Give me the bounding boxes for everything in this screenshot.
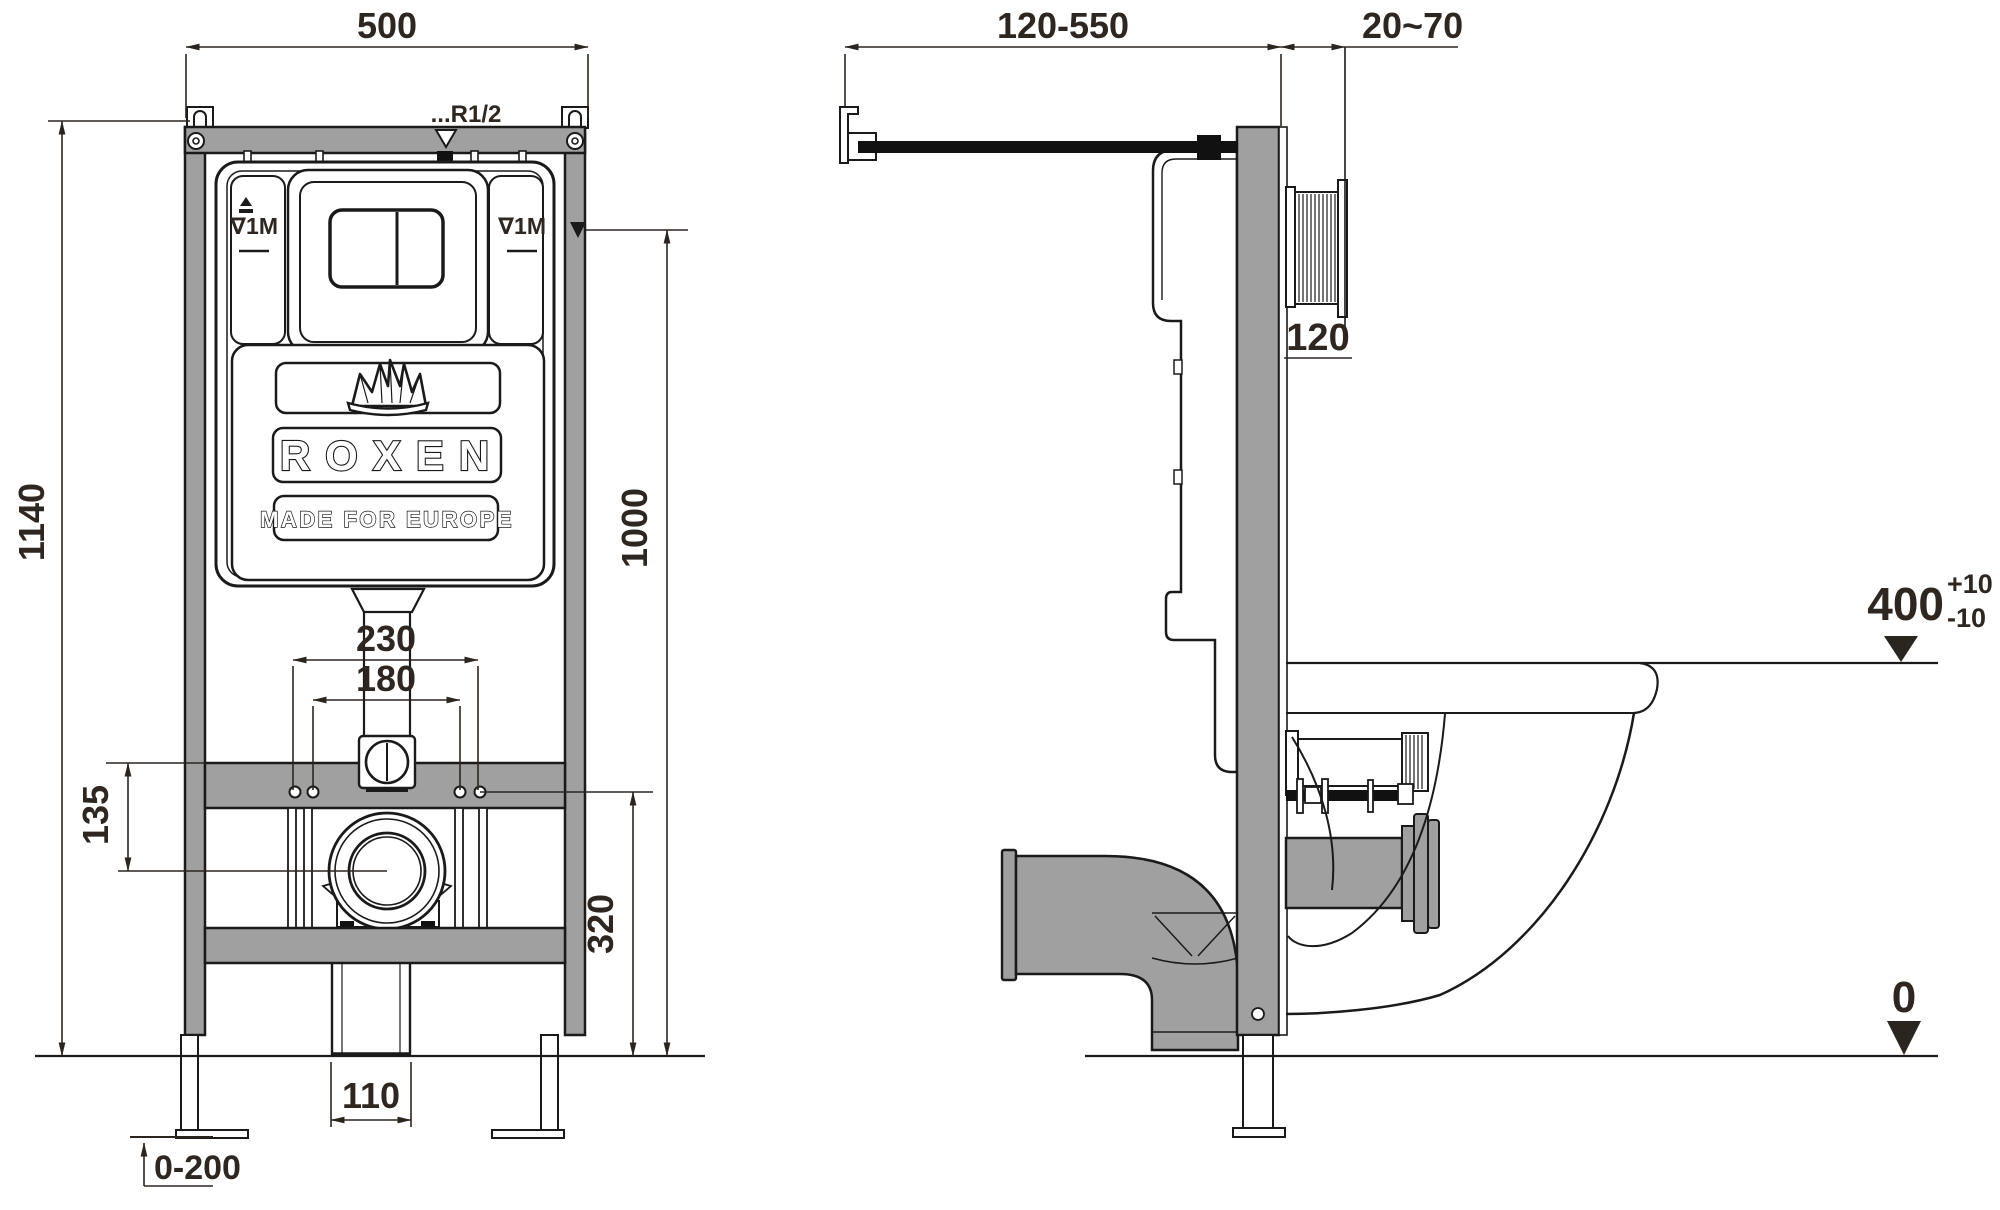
floor-outlet-pipe — [332, 963, 410, 1056]
drain-elbow — [1002, 850, 1238, 1050]
dim-label-1000: 1000 — [614, 488, 655, 568]
rod-clamp — [1197, 135, 1221, 160]
dim-label-320: 320 — [580, 894, 621, 954]
post-hole — [1252, 1008, 1264, 1020]
brand-tagline: MADE FOR EUROPE — [260, 507, 514, 532]
dim-label-400-plus: +10 — [1947, 569, 1993, 599]
dim-height-1140 — [48, 121, 190, 1056]
post-foot — [1233, 1035, 1285, 1137]
dim-label-135: 135 — [75, 785, 116, 845]
lower-crossbar — [205, 928, 565, 963]
bolt-hole-left — [188, 133, 204, 149]
dim-width-500 — [186, 47, 588, 118]
cistern-column-left — [231, 176, 285, 344]
dim-label-400: 400 — [1867, 578, 1944, 630]
foot-right — [492, 1035, 564, 1138]
dim-label-120: 120 — [1286, 317, 1349, 359]
mounting-tab-right — [562, 107, 588, 128]
level-mark-right: ∇1M — [498, 213, 546, 239]
level-triangle-icon-0 — [1887, 1021, 1921, 1055]
flush-buttons — [330, 210, 443, 287]
side-view-dimensions — [845, 47, 1458, 126]
brand-panel: ROXEN MADE FOR EUROPE — [232, 345, 544, 580]
frame-rail-left — [185, 127, 205, 1035]
installation-drawing: ...R1/2 ∇1M ∇1M — [0, 0, 2000, 1210]
bolt-hole-right — [567, 133, 583, 149]
drawing-canvas: ...R1/2 ∇1M ∇1M — [0, 0, 2000, 1210]
dim-label-500: 500 — [357, 5, 417, 46]
cistern-side — [1153, 150, 1237, 772]
cistern-outlet-funnel — [352, 589, 424, 612]
floor-level: 0 — [1887, 973, 1921, 1055]
dim-label-180: 180 — [356, 658, 416, 699]
frame-post-side — [1237, 127, 1279, 1035]
dim-label-1140: 1140 — [11, 483, 52, 561]
flush-shaft — [1286, 180, 1347, 317]
level-mark-left: ∇1M — [230, 213, 278, 239]
dim-label-400-minus: -10 — [1947, 603, 1986, 633]
dim-rod-120-550 — [845, 47, 1281, 126]
cistern-column-right — [489, 176, 543, 344]
rim-height-level: 400 +10 -10 — [1867, 569, 1993, 662]
side-view — [840, 47, 1938, 1137]
foot-left — [176, 1035, 248, 1138]
dim-label-0: 0 — [1892, 973, 1916, 1022]
elbow-fitting — [359, 736, 415, 790]
water-inlet-label: ...R1/2 — [431, 101, 502, 128]
top-crossbar — [185, 127, 585, 153]
dim-label-0-200: 0-200 — [154, 1149, 241, 1187]
drain-connector — [1286, 814, 1439, 933]
level-triangle-icon-400 — [1884, 636, 1918, 662]
brand-name: ROXEN — [280, 432, 504, 479]
dim-label-120-550: 120-550 — [997, 5, 1129, 46]
dim-label-110: 110 — [342, 1075, 400, 1116]
dim-label-230: 230 — [356, 618, 416, 659]
mounting-tab-left — [187, 107, 213, 128]
dim-label-20-70: 20~70 — [1362, 5, 1463, 46]
